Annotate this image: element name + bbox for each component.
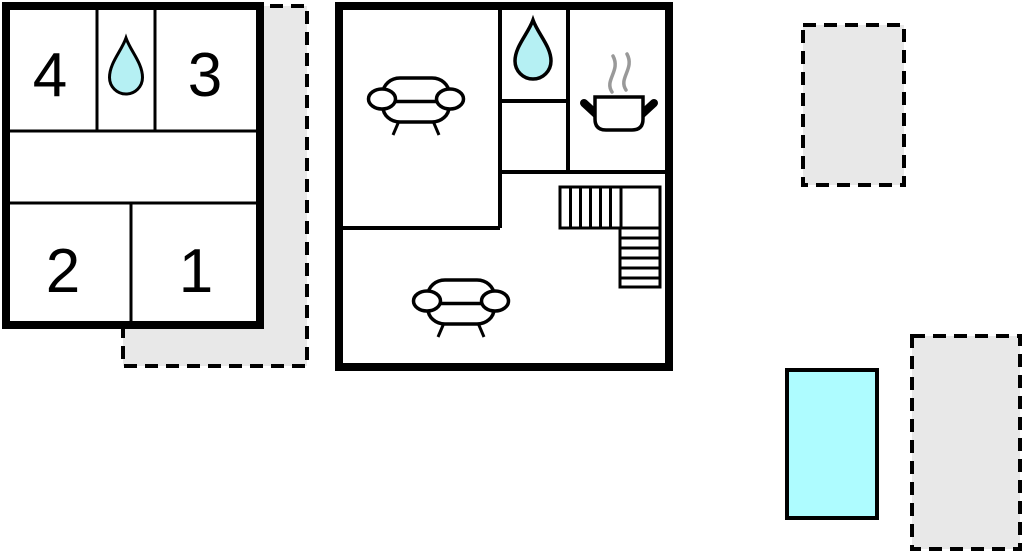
room-label-3: 3: [188, 41, 222, 110]
terrace-top-right: [803, 25, 904, 185]
upper-floor-plan: 4 3 2 1: [6, 6, 260, 325]
terrace-bottom-right: [912, 336, 1020, 549]
swimming-pool: [787, 370, 877, 518]
ground-floor-plan: [339, 6, 669, 367]
pot-body: [595, 97, 643, 130]
room-label-1: 1: [179, 237, 213, 306]
room-label-2: 2: [46, 237, 80, 306]
floor-plan-canvas: 4 3 2 1: [0, 0, 1024, 553]
room-label-4: 4: [33, 41, 67, 110]
